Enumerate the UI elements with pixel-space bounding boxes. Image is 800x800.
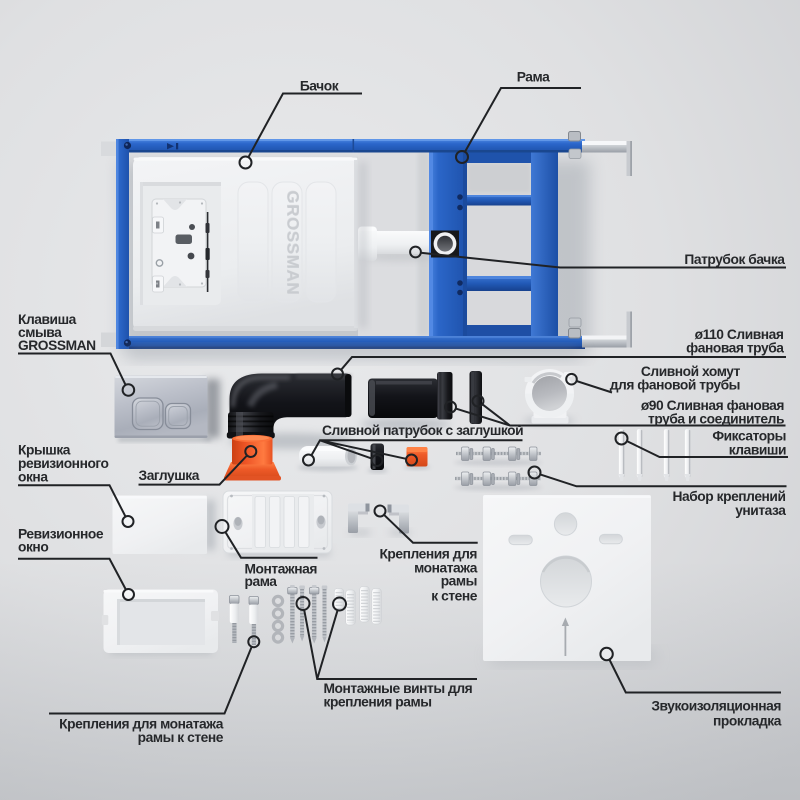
- svg-text:Патрубок бачка: Патрубок бачка: [684, 252, 785, 267]
- svg-text:Рама: Рама: [517, 70, 550, 85]
- svg-text:Бачок: Бачок: [300, 79, 339, 94]
- svg-text:Набор креплений: Набор креплений: [673, 489, 786, 504]
- svg-text:окна: окна: [18, 470, 48, 485]
- svg-text:GROSSMAN: GROSSMAN: [18, 338, 96, 353]
- svg-text:труба и соединитель: труба и соединитель: [648, 411, 784, 426]
- svg-text:рамы к стене: рамы к стене: [138, 730, 224, 745]
- svg-text:Крепления для: Крепления для: [379, 547, 477, 562]
- svg-text:Заглушка: Заглушка: [139, 468, 200, 483]
- svg-text:клавиши: клавиши: [729, 442, 786, 457]
- svg-text:крепления рамы: крепления рамы: [324, 695, 432, 710]
- svg-text:фановая труба: фановая труба: [686, 340, 784, 355]
- svg-text:для фановой трубы: для фановой трубы: [610, 377, 740, 392]
- svg-text:рамы: рамы: [441, 574, 477, 589]
- svg-text:унитаза: унитаза: [735, 503, 786, 518]
- svg-text:рама: рама: [245, 574, 278, 589]
- svg-text:Сливной патрубок с заглушкой: Сливной патрубок с заглушкой: [322, 423, 523, 438]
- svg-text:Звукоизоляционная: Звукоизоляционная: [651, 699, 781, 714]
- svg-text:GROSSMAN: GROSSMAN: [283, 190, 302, 295]
- svg-text:окно: окно: [18, 540, 48, 555]
- svg-text:к стене: к стене: [431, 589, 477, 604]
- svg-text:прокладка: прокладка: [713, 714, 782, 729]
